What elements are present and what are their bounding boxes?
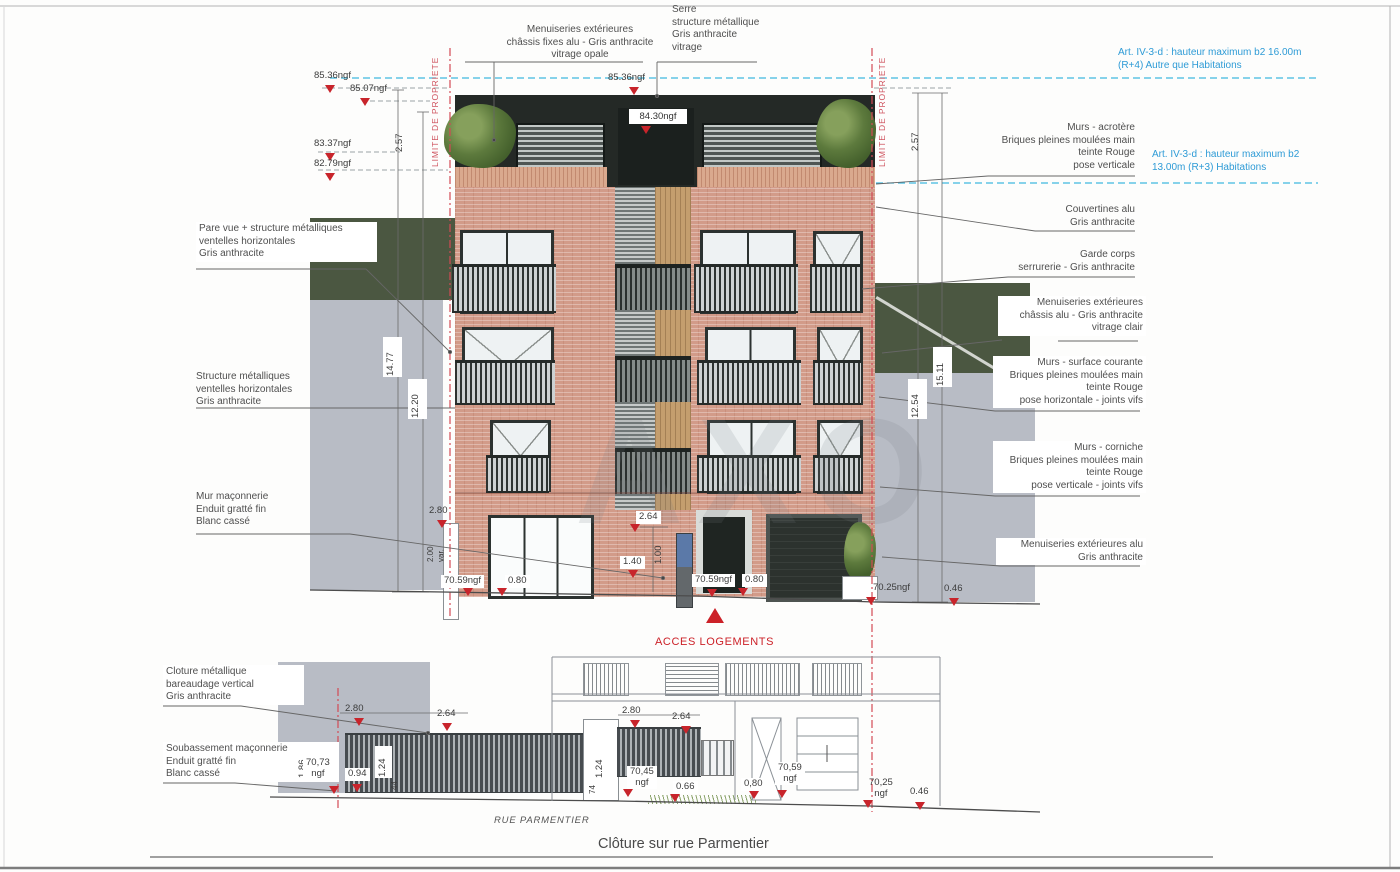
- balcony-railing-r2-left: [455, 360, 555, 405]
- dim-marker: [354, 718, 364, 726]
- balcony-railing-r3-left: [452, 264, 556, 313]
- label-garde-corps: Garde corps serrurerie - Gris anthracite: [985, 249, 1135, 274]
- label-structure-metallique: Structure métalliques ventelles horizont…: [196, 371, 346, 409]
- fence-dim-1-24-b: 1.24: [592, 747, 609, 779]
- dim-2-00-var: 2.00 var.: [426, 532, 450, 562]
- serre-louver-window-left: [516, 123, 605, 169]
- label-pare-vue: Pare vue + structure métalliques ventell…: [196, 222, 377, 262]
- dim-marker: [681, 726, 691, 734]
- label-menuiseries-alu: Menuiseries extérieures alu Gris anthrac…: [996, 538, 1146, 565]
- fence-dim-2-80-a: 2.80: [345, 704, 364, 715]
- fence-light-panel: [701, 740, 734, 776]
- access-logements-label: ACCES LOGEMENTS: [655, 636, 774, 648]
- dim-marker: [497, 588, 507, 596]
- regulation-note-r4: Art. IV-3-d : hauteur maximum b2 16.00m …: [1118, 46, 1328, 72]
- fence-level-70-45: 70,45 ngf: [627, 766, 657, 789]
- property-limit-label-right: LIMITE DE PROPRIETE: [877, 52, 887, 167]
- label-mur-maconnerie: Mur maçonnerie Enduit gratté fin Blanc c…: [196, 491, 316, 529]
- level-85-07: 85.07ngf: [350, 84, 387, 95]
- house-roof-railing-panel-3: [725, 663, 800, 696]
- architectural-drawing-sheet: AXO: [0, 0, 1400, 872]
- dim-0-80-door-left: 0.80: [505, 575, 530, 588]
- balcony-railing-r3-right: [694, 264, 798, 313]
- dim-marker: [670, 794, 680, 802]
- dim-marker: [442, 723, 452, 731]
- fence-dim-2-64-a: 2.64: [437, 709, 456, 720]
- grass-strip: [648, 795, 756, 804]
- fence-dim-44: 44: [390, 774, 398, 790]
- dim-1-00: 1.00: [654, 538, 666, 564]
- drawing-title: Clôture sur rue Parmentier: [598, 836, 769, 852]
- dim-12-54: 12.54: [908, 379, 927, 419]
- level-83-37: 83.37ngf: [314, 139, 351, 150]
- level-70-59-center: 70.59ngf: [692, 574, 735, 587]
- fence-level-70-25: 70,25 ngf: [869, 778, 893, 799]
- house-roof-railing-panel-4: [812, 663, 862, 696]
- dim-2-80-wall: 2.80: [429, 506, 448, 517]
- level-marker: [641, 126, 651, 134]
- house-roof-railing-panel-1: [583, 663, 629, 696]
- regulation-note-r3: Art. IV-3-d : hauteur maximum b2 13.00m …: [1152, 148, 1327, 174]
- dim-12-20: 12.20: [408, 379, 427, 419]
- roof-plant-left: [444, 104, 516, 168]
- label-murs-corniche: Murs - corniche Briques pleines moulées …: [993, 441, 1146, 493]
- serre-louver-window-right: [702, 123, 822, 169]
- level-marker: [360, 98, 370, 106]
- level-85-36-center: 85.36ngf: [608, 73, 645, 84]
- fence-dim-2-64-b: 2.64: [672, 712, 691, 723]
- label-menuiseries-opale: Menuiseries extérieures châssis fixes al…: [505, 24, 655, 62]
- roof-plant-right: [816, 99, 876, 168]
- level-marker: [623, 789, 633, 797]
- level-84-30-badge: 84.30ngf: [629, 109, 687, 124]
- dim-marker: [749, 791, 759, 799]
- dim-marker: [437, 520, 447, 528]
- fence-dim-0-66: 0.66: [673, 781, 698, 794]
- stair-landing-railing-1: [615, 264, 691, 310]
- property-limit-label-left: LIMITE DE PROPRIETE: [430, 52, 440, 167]
- dim-2-57-left: 2.57: [395, 122, 407, 152]
- left-neighbor-wall: [310, 300, 443, 590]
- dim-marker: [628, 570, 638, 578]
- dim-marker: [630, 524, 640, 532]
- dim-0-46-right: 0.46: [944, 584, 963, 595]
- label-murs-surface-courante: Murs - surface courante Briques pleines …: [993, 356, 1146, 408]
- level-marker: [629, 87, 639, 95]
- dim-marker: [949, 598, 959, 606]
- level-marker: [329, 786, 339, 794]
- level-marker: [325, 173, 335, 181]
- access-arrow: [706, 608, 724, 623]
- level-marker: [707, 589, 717, 597]
- level-marker: [463, 588, 473, 596]
- level-85-36-left: 85.36ngf: [314, 71, 351, 82]
- balcony-railing-r1-left: [486, 455, 549, 493]
- dim-15-11: 15.11: [933, 347, 952, 387]
- label-menuiseries-clair: Menuiseries extérieures châssis alu - Gr…: [998, 296, 1146, 336]
- label-serre: Serre structure métallique Gris anthraci…: [672, 4, 782, 54]
- dim-marker: [738, 588, 748, 596]
- dim-14-77: 14.77: [383, 337, 402, 377]
- label-couvertines: Couvertines alu Gris anthracite: [985, 204, 1135, 229]
- dim-0-80-entry: 0.80: [742, 574, 767, 587]
- level-82-79: 82.79ngf: [314, 159, 351, 170]
- fence-dim-74: 74: [588, 778, 596, 794]
- fence-dim-0-94: 0.94: [345, 768, 370, 781]
- terrace-parapet-right: [697, 167, 875, 187]
- terrace-parapet-left: [455, 167, 607, 187]
- dim-2-64-entry: 2.64: [636, 511, 661, 524]
- fence-dim-0-46: 0.46: [910, 787, 929, 798]
- dim-marker: [352, 784, 362, 792]
- level-marker: [866, 597, 876, 605]
- dim-marker: [915, 802, 925, 810]
- level-70-59-left: 70.59ngf: [441, 575, 484, 588]
- fence-level-70-59: 70,59 ngf: [775, 762, 805, 785]
- balcony-railing-r3-far-right: [810, 264, 860, 313]
- level-marker: [777, 790, 787, 798]
- fence-dim-2-80-b: 2.80: [622, 706, 641, 717]
- dim-1-40: 1.40: [620, 556, 645, 569]
- dim-2-57-right: 2.57: [911, 121, 923, 151]
- label-murs-acrotere: Murs - acrotère Briques pleines moulées …: [985, 122, 1135, 172]
- level-marker: [325, 85, 335, 93]
- watermark-logo: AXO: [575, 385, 942, 558]
- level-marker: [863, 800, 873, 808]
- street-name-label: RUE PARMENTIER: [494, 815, 589, 826]
- fence-level-70-73: 70,73 ngf: [303, 757, 333, 780]
- label-cloture-metallique: Cloture métallique bareaudage vertical G…: [163, 665, 304, 705]
- fence-dim-0-80: 0,80: [741, 778, 766, 791]
- house-roof-railing-panel-2: [665, 663, 719, 696]
- level-70-25: 70.25ngf: [873, 583, 910, 594]
- dim-marker: [630, 720, 640, 728]
